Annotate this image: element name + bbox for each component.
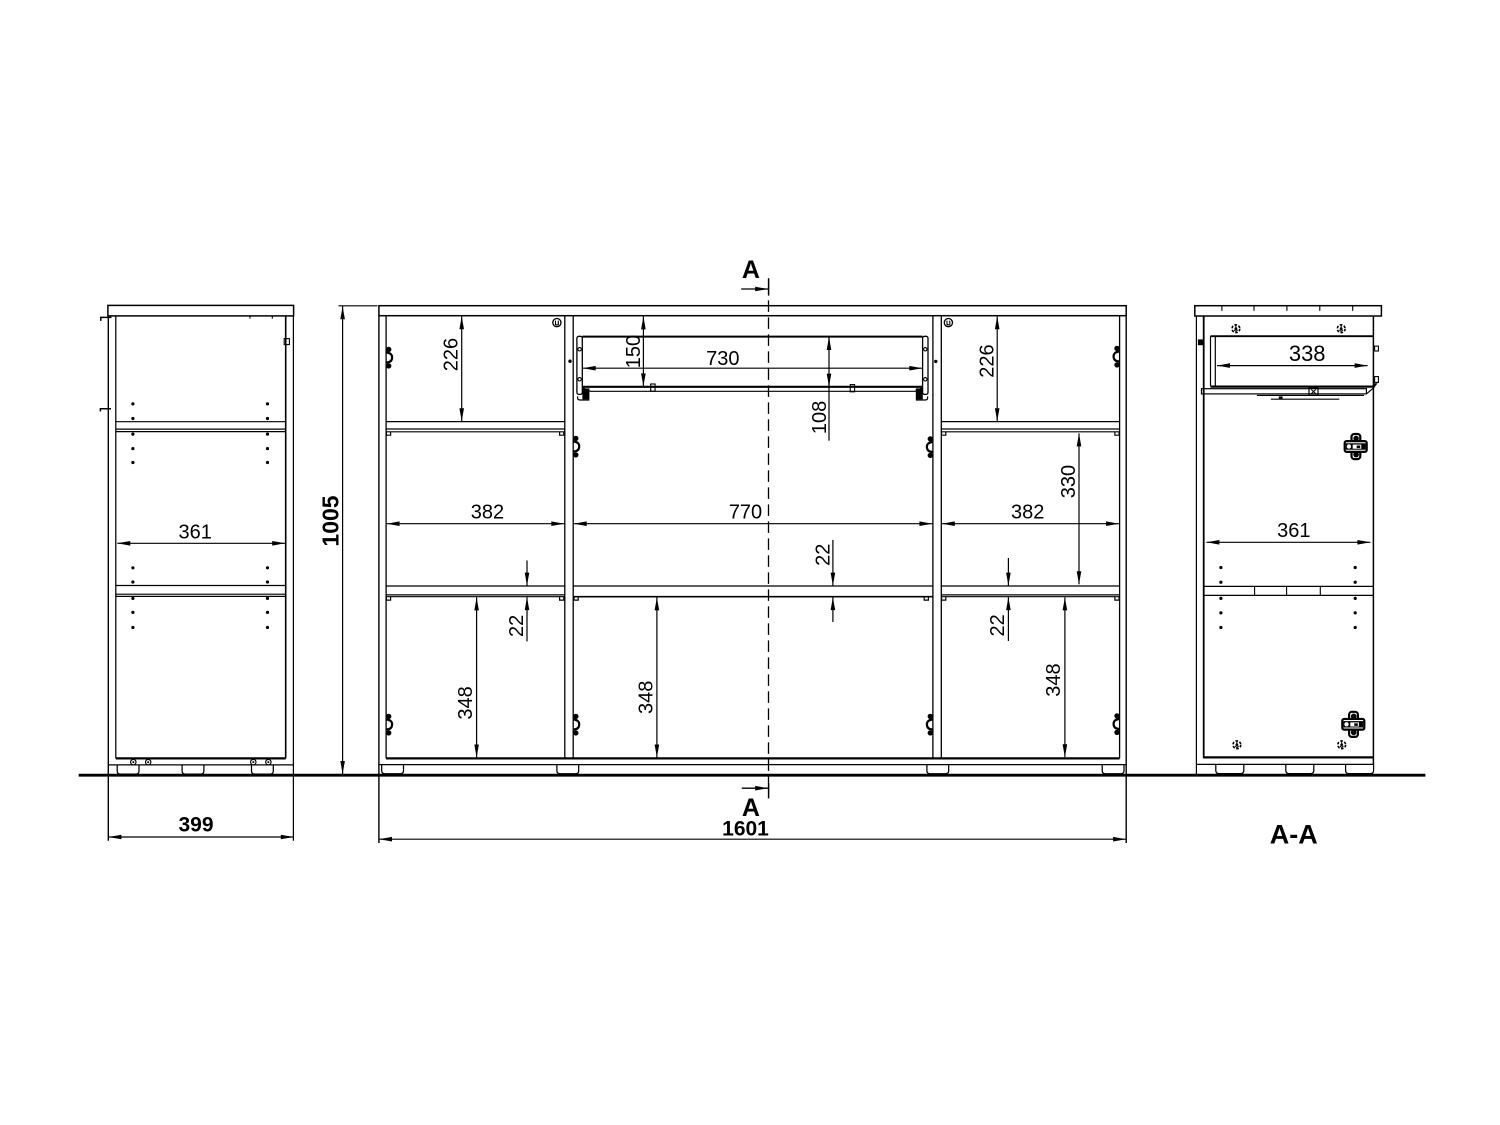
svg-text:348: 348	[455, 686, 477, 719]
svg-text:730: 730	[706, 348, 739, 370]
svg-text:226: 226	[976, 344, 998, 377]
svg-text:770: 770	[729, 501, 762, 523]
svg-text:1005: 1005	[318, 495, 344, 546]
svg-text:A-A: A-A	[1270, 820, 1318, 850]
svg-text:226: 226	[441, 338, 463, 371]
svg-text:1601: 1601	[722, 818, 769, 841]
svg-text:361: 361	[179, 522, 212, 544]
svg-text:150: 150	[623, 335, 645, 368]
svg-text:22: 22	[506, 615, 528, 637]
svg-text:382: 382	[1011, 501, 1044, 523]
svg-text:348: 348	[1043, 663, 1065, 696]
svg-text:330: 330	[1058, 465, 1080, 498]
svg-text:108: 108	[809, 401, 831, 434]
svg-text:338: 338	[1289, 341, 1326, 366]
svg-text:399: 399	[178, 814, 213, 837]
svg-text:348: 348	[635, 681, 657, 714]
svg-text:A: A	[742, 256, 760, 284]
svg-text:22: 22	[987, 614, 1009, 636]
svg-text:361: 361	[1277, 520, 1310, 542]
svg-text:382: 382	[471, 501, 504, 523]
svg-text:22: 22	[812, 544, 834, 566]
